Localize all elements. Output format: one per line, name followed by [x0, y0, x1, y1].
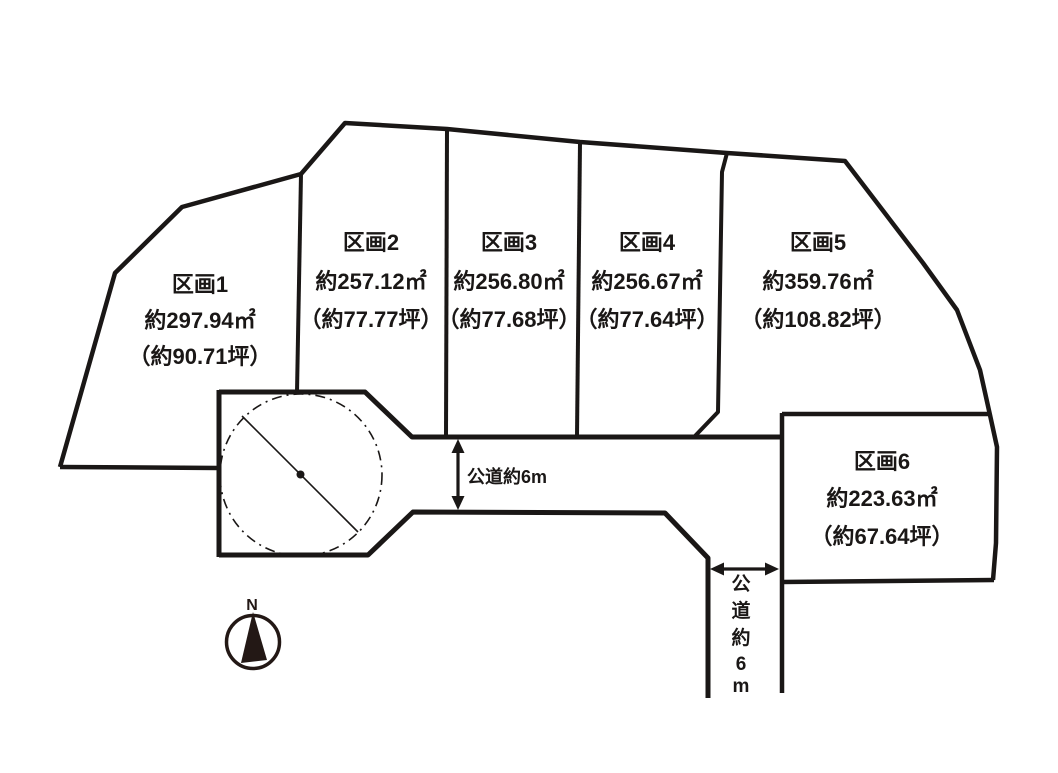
vertical-road-label-char-2: 道 [731, 599, 750, 622]
plot-5-name: 区画5 [790, 230, 846, 255]
plot-2-name: 区画2 [343, 230, 399, 255]
arrowhead-up-icon [452, 439, 465, 453]
plot-3-area: 約256.80㎡ [453, 269, 564, 294]
divider-plot4-plot5 [695, 153, 727, 436]
vertical-road-label-char-5: m [733, 676, 750, 697]
plot-4-name: 区画4 [619, 230, 676, 255]
compass-needle-group [241, 612, 267, 663]
boundary-lines [60, 123, 997, 698]
divider-plot3-plot4 [577, 142, 580, 436]
arrowhead-left-icon [710, 563, 724, 576]
divider-plot2-plot3 [446, 129, 447, 436]
plot-4-tsubo: （約77.64坪） [575, 307, 718, 332]
plot-2-tsubo: （約77.77坪） [299, 307, 442, 332]
plot-6-tsubo: （約67.64坪） [810, 524, 953, 549]
compass-north-label: N [246, 597, 258, 614]
vertical-road-label-char-4: 6 [736, 654, 747, 675]
divider-plot1-plot2 [297, 174, 301, 392]
plot-1-bottom-edge [60, 467, 219, 468]
plot-5-tsubo: （約108.82坪） [740, 307, 895, 332]
land-plot-diagram: 区画1 約297.94㎡ （約90.71坪） 区画2 約257.12㎡ （約77… [0, 0, 1058, 773]
plot-1-name: 区画1 [172, 272, 228, 297]
arrowhead-right-icon [765, 563, 779, 576]
plot-3-tsubo: （約77.68坪） [437, 307, 580, 332]
plot-5-area: 約359.76㎡ [762, 269, 873, 294]
turnaround-center-dot [297, 471, 305, 479]
plot-1-area: 約297.94㎡ [144, 308, 255, 333]
turnaround-bottom-and-road-south-edge [219, 512, 708, 698]
plot-6-bottom-edge [782, 580, 994, 582]
plot-6-area: 約223.63㎡ [826, 486, 937, 511]
plot-map-svg: 区画1 約297.94㎡ （約90.71坪） 区画2 約257.12㎡ （約77… [0, 0, 1058, 773]
vertical-road-label-char-3: 約 [731, 626, 750, 649]
plot-1-tsubo: （約90.71坪） [128, 344, 271, 369]
turnaround-top-and-road-north-edge [219, 392, 782, 437]
plot-3-name: 区画3 [481, 230, 537, 255]
compass-label-group: N [246, 597, 258, 614]
plot-2-area: 約257.12㎡ [315, 269, 426, 294]
road-label-horizontal: 公道約6m [467, 466, 547, 487]
vertical-road-label-char-1: 公 [731, 573, 750, 595]
north-needle-icon [241, 612, 267, 663]
plot-4-area: 約256.67㎡ [591, 269, 702, 294]
plot-6-name: 区画6 [854, 449, 910, 474]
arrowhead-down-icon [452, 496, 465, 510]
